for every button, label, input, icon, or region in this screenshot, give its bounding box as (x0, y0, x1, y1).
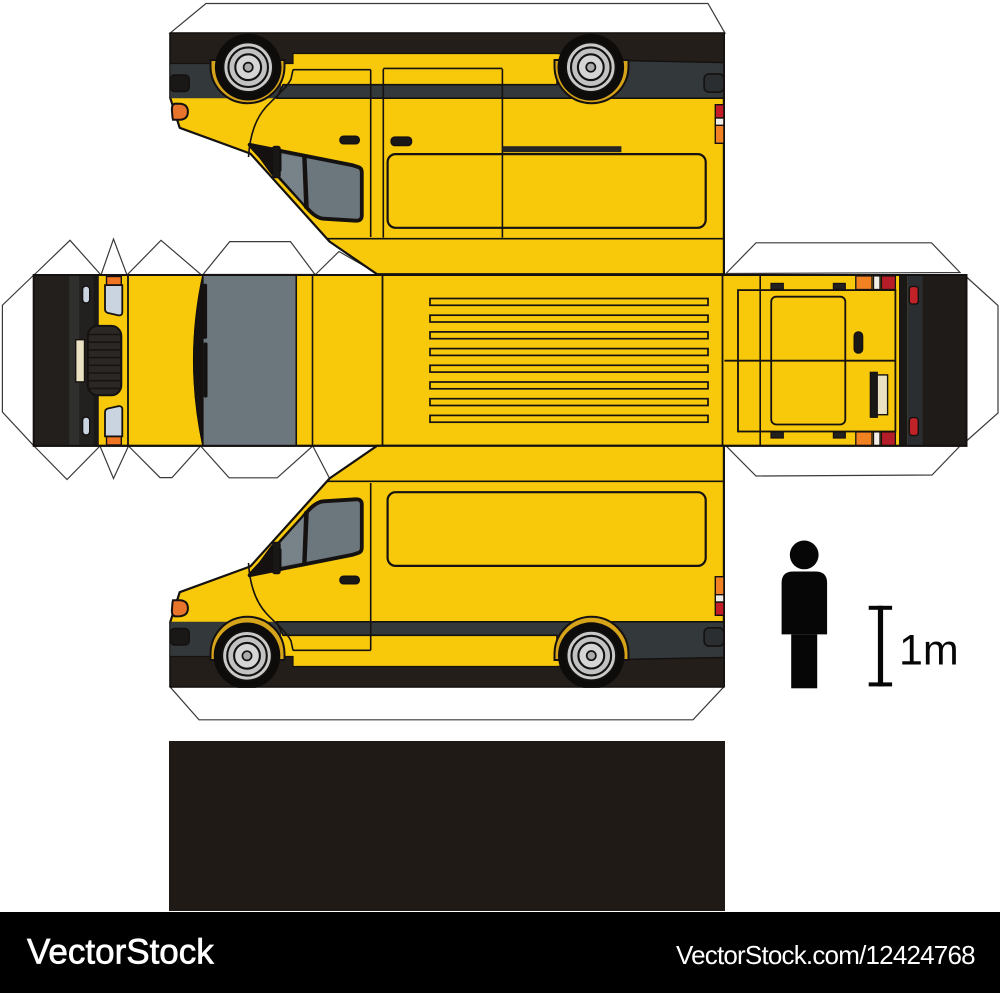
svg-text:1m: 1m (899, 627, 959, 675)
svg-text:VectorStock: VectorStock (27, 933, 214, 972)
svg-text:VectorStock.com/12424768: VectorStock.com/12424768 (676, 940, 975, 970)
